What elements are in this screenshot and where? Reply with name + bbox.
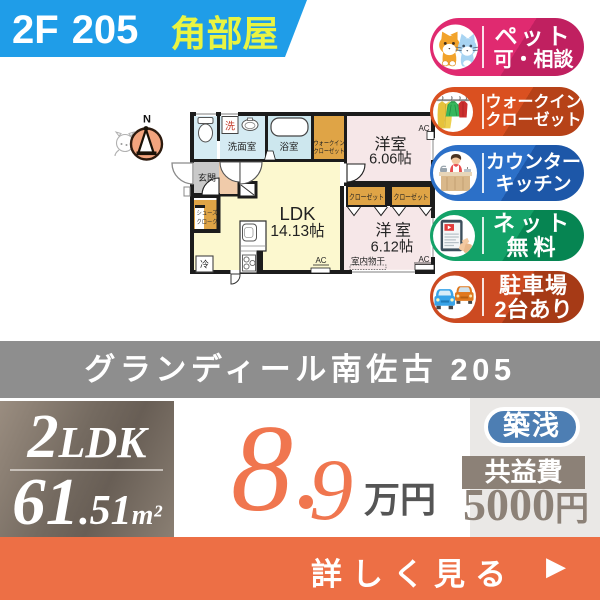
svg-text:クローク: クローク bbox=[197, 219, 218, 226]
svg-text:AC: AC bbox=[315, 256, 326, 265]
svg-text:シューズ: シューズ bbox=[197, 209, 218, 217]
svg-text:浴室: 浴室 bbox=[279, 141, 298, 153]
svg-text:冷: 冷 bbox=[200, 259, 209, 270]
svg-text:6.06帖: 6.06帖 bbox=[369, 151, 412, 168]
svg-text:洗面室: 洗面室 bbox=[228, 141, 257, 153]
svg-text:洋室: 洋室 bbox=[375, 222, 414, 240]
svg-text:クローゼット: クローゼット bbox=[349, 192, 384, 202]
svg-text:ウォークイン: ウォークイン bbox=[314, 139, 345, 147]
svg-text:洗: 洗 bbox=[225, 121, 235, 133]
svg-text:LDK: LDK bbox=[280, 203, 317, 224]
svg-text:14.13帖: 14.13帖 bbox=[270, 222, 324, 240]
svg-text:室内物干: 室内物干 bbox=[351, 256, 386, 266]
svg-text:クローゼット: クローゼット bbox=[394, 192, 429, 202]
svg-text:6.12帖: 6.12帖 bbox=[371, 239, 414, 256]
svg-text:N: N bbox=[143, 114, 151, 126]
svg-text:玄関: 玄関 bbox=[198, 172, 216, 183]
svg-text:クローゼット: クローゼット bbox=[314, 146, 345, 155]
